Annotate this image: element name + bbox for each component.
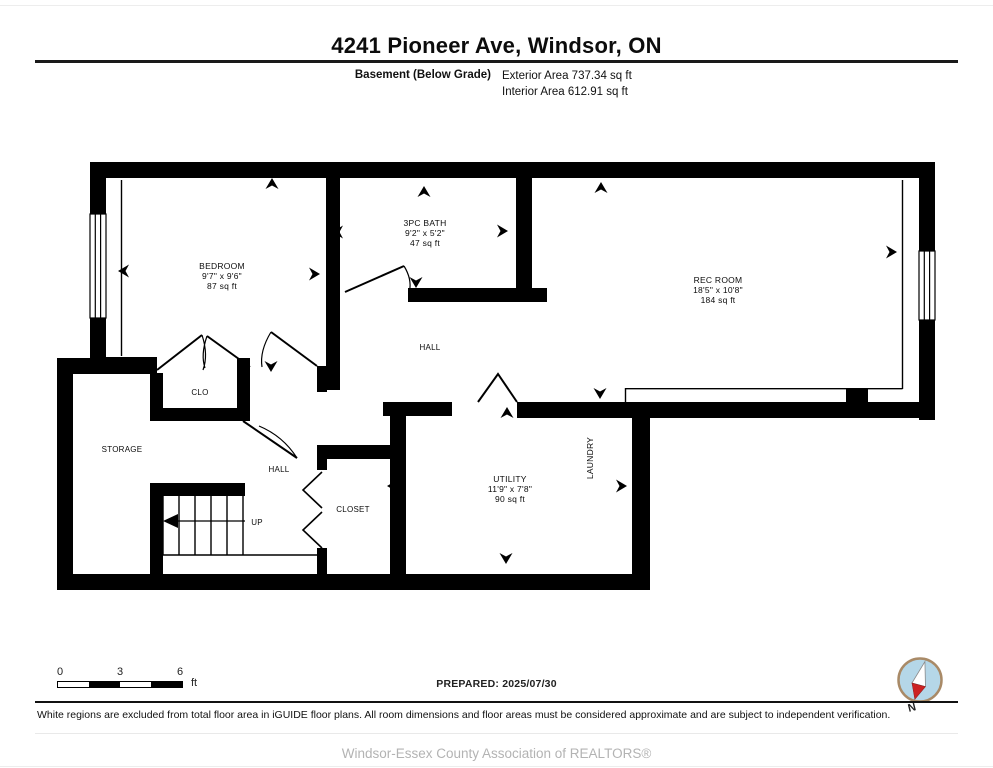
- scale-tick-0: 0: [57, 666, 63, 678]
- scale-tick-3: 3: [117, 666, 123, 678]
- room-label-utility: UTILITY 11'9" x 7'8" 90 sq ft: [488, 474, 532, 504]
- bottom-edge-line: [0, 766, 993, 767]
- footer-divider: [35, 733, 958, 734]
- scale-tick-6: 6: [177, 666, 183, 678]
- room-label-hall-lower: HALL: [268, 465, 289, 475]
- bottom-rule: [35, 701, 958, 703]
- room-area: 184 sq ft: [693, 295, 743, 305]
- prepared-date: PREPARED: 2025/07/30: [0, 678, 993, 690]
- room-name: BEDROOM: [199, 261, 245, 271]
- stairs-group: [158, 496, 317, 555]
- room-dims: 9'2" x 5'2": [404, 228, 447, 238]
- room-label-rec-room: REC ROOM 18'5" x 10'8" 184 sq ft: [693, 275, 743, 305]
- room-label-bath: 3PC BATH 9'2" x 5'2" 47 sq ft: [404, 218, 447, 248]
- room-label-storage: STORAGE: [102, 445, 143, 455]
- room-area: 90 sq ft: [488, 494, 532, 504]
- stairs-up-arrow: [163, 514, 178, 528]
- room-label-bedroom: BEDROOM 9'7" x 9'6" 87 sq ft: [199, 261, 245, 291]
- floorplan-drawing: [0, 0, 993, 768]
- room-label-clo: CLO: [191, 388, 208, 398]
- room-name: 3PC BATH: [404, 218, 447, 228]
- room-dims: 9'7" x 9'6": [199, 271, 245, 281]
- stairs-up-label: UP: [251, 518, 263, 528]
- disclaimer-text: White regions are excluded from total fl…: [37, 709, 890, 721]
- room-dims: 18'5" x 10'8": [693, 285, 743, 295]
- room-area: 47 sq ft: [404, 238, 447, 248]
- room-label-hall-upper: HALL: [419, 343, 440, 353]
- room-name: UTILITY: [488, 474, 532, 484]
- room-area: 87 sq ft: [199, 281, 245, 291]
- closet-bifold-doors: [303, 472, 322, 548]
- room-dims: 11'9" x 7'8": [488, 484, 532, 494]
- footer-association: Windsor-Essex County Association of REAL…: [0, 746, 993, 761]
- room-name: REC ROOM: [693, 275, 743, 285]
- floorplan-page: 4241 Pioneer Ave, Windsor, ON Basement (…: [0, 0, 993, 768]
- room-label-laundry: LAUNDRY: [585, 437, 595, 479]
- room-label-closet: CLOSET: [336, 505, 370, 515]
- dimension-arrows-group: [118, 178, 897, 564]
